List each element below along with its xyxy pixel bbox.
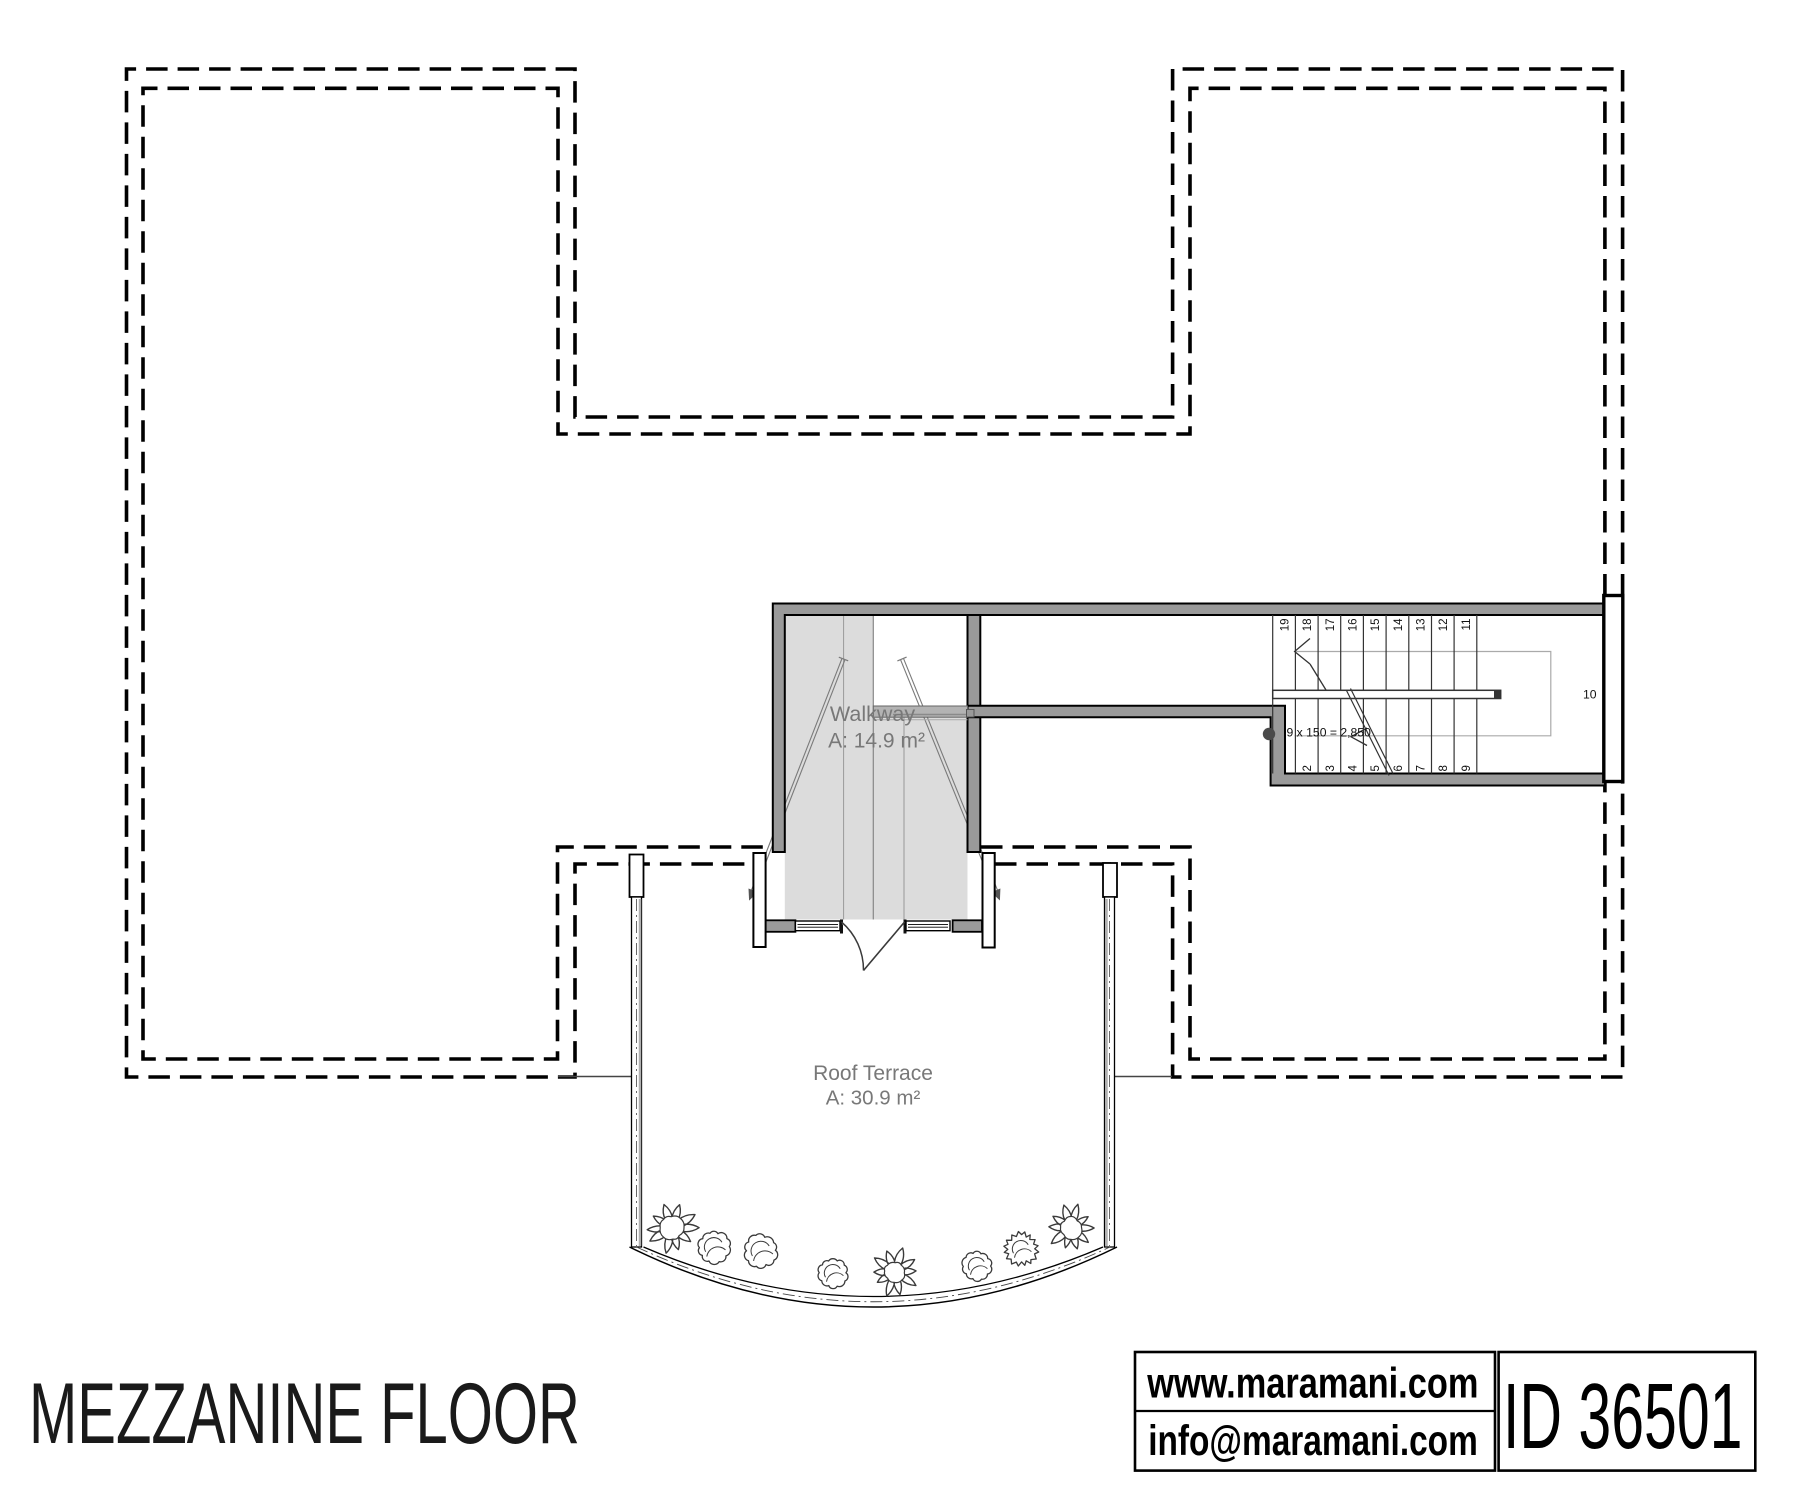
svg-text:11: 11 [1461,619,1473,631]
svg-text:info@maramani.com: info@maramani.com [1148,1417,1478,1465]
svg-text:Roof Terrace: Roof Terrace [813,1062,933,1085]
svg-text:5: 5 [1370,765,1382,771]
svg-text:A: 30.9 m²: A: 30.9 m² [826,1087,921,1110]
svg-text:18: 18 [1302,619,1314,632]
svg-text:14: 14 [1393,618,1405,631]
svg-text:13: 13 [1416,619,1428,632]
svg-text:MEZZANINE FLOOR: MEZZANINE FLOOR [29,1364,580,1461]
svg-text:9 x 150 = 2,850: 9 x 150 = 2,850 [1287,726,1372,740]
svg-text:16: 16 [1348,619,1360,632]
svg-text:www.maramani.com: www.maramani.com [1146,1360,1478,1407]
svg-text:9: 9 [1461,765,1473,771]
svg-text:10: 10 [1583,688,1597,702]
svg-text:17: 17 [1325,619,1337,632]
svg-text:15: 15 [1370,619,1382,632]
svg-text:3: 3 [1325,765,1337,771]
svg-text:12: 12 [1438,619,1450,632]
svg-text:Walkway: Walkway [830,702,915,726]
svg-text:A: 14.9 m²: A: 14.9 m² [828,730,925,753]
svg-text:8: 8 [1438,765,1450,771]
svg-text:19: 19 [1279,619,1291,632]
svg-text:6: 6 [1393,765,1405,771]
svg-text:7: 7 [1416,765,1428,771]
svg-text:2: 2 [1302,765,1314,771]
svg-text:4: 4 [1348,765,1360,772]
svg-text:ID 36501: ID 36501 [1503,1366,1742,1469]
